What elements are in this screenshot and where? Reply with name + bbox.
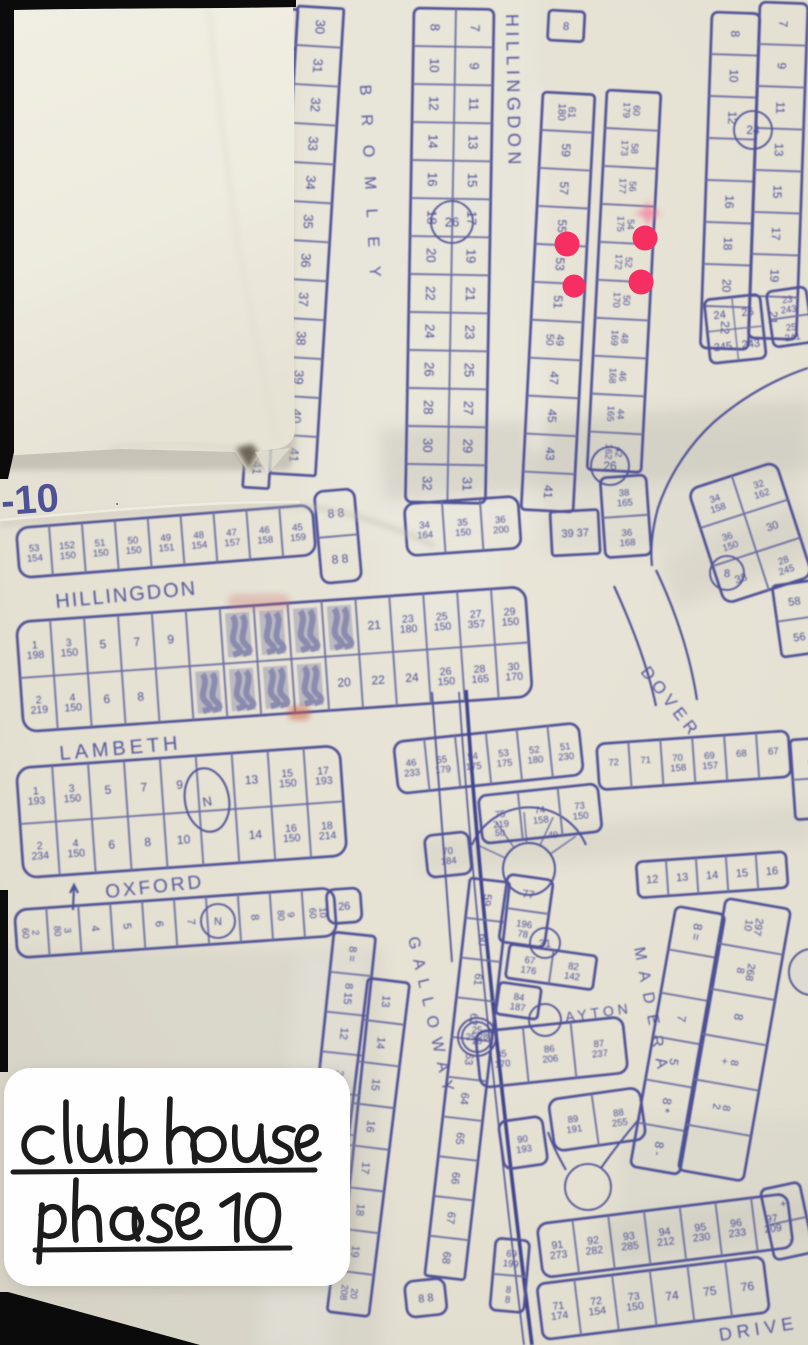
svg-text:38: 38	[293, 331, 309, 346]
svg-text:8: 8	[563, 21, 570, 33]
svg-text:74: 74	[665, 1288, 680, 1304]
svg-text:11: 11	[773, 101, 787, 114]
svg-text:14: 14	[248, 827, 263, 842]
svg-text:152150: 152150	[59, 540, 76, 562]
svg-text:67: 67	[768, 746, 779, 758]
svg-text:24: 24	[405, 670, 420, 685]
svg-text:61: 61	[471, 973, 484, 987]
svg-text:7: 7	[184, 918, 196, 925]
svg-text:71: 71	[640, 755, 651, 767]
svg-text:55: 55	[555, 219, 570, 233]
svg-text:8 *: 8 *	[658, 1097, 674, 1114]
svg-text:21: 21	[463, 287, 478, 302]
svg-text:31: 31	[310, 58, 326, 73]
svg-text:8 -: 8 -	[650, 1141, 666, 1157]
svg-text:15: 15	[368, 1078, 381, 1092]
svg-text:31: 31	[460, 477, 475, 492]
svg-text:58: 58	[788, 595, 802, 609]
svg-text:26: 26	[422, 362, 437, 377]
svg-text:30: 30	[420, 438, 435, 453]
svg-text:24: 24	[713, 309, 726, 322]
svg-text:32: 32	[308, 97, 324, 112]
svg-text:77: 77	[521, 888, 535, 902]
svg-text:13: 13	[772, 143, 786, 157]
svg-text:12: 12	[337, 1027, 350, 1040]
svg-text:60: 60	[475, 933, 488, 947]
svg-text:64: 64	[457, 1092, 470, 1106]
svg-text:56: 56	[793, 631, 807, 645]
svg-text:23: 23	[462, 325, 477, 340]
svg-text:8 8: 8 8	[418, 1292, 434, 1306]
svg-text:17: 17	[358, 1161, 371, 1175]
svg-text:33: 33	[305, 136, 321, 151]
svg-text:7: 7	[140, 780, 148, 794]
svg-text:27: 27	[461, 401, 476, 416]
svg-text:5: 5	[104, 783, 112, 797]
svg-text:22: 22	[423, 286, 438, 301]
svg-text:8: 8	[428, 24, 443, 31]
svg-text:20: 20	[719, 279, 733, 293]
svg-text:5: 5	[99, 637, 107, 651]
svg-text:24: 24	[746, 123, 760, 137]
svg-text:16: 16	[425, 172, 440, 187]
svg-text:15: 15	[736, 867, 749, 880]
svg-text:13: 13	[466, 135, 481, 150]
svg-text:8 15: 8 15	[341, 982, 355, 1005]
svg-text:10: 10	[176, 832, 191, 847]
svg-text:17: 17	[769, 227, 783, 241]
svg-text:59: 59	[480, 893, 493, 907]
svg-text:5: 5	[121, 923, 133, 930]
svg-text:31: 31	[539, 938, 551, 950]
svg-text:37: 37	[296, 292, 312, 307]
svg-text:76: 76	[740, 1279, 755, 1295]
svg-text:30: 30	[312, 19, 328, 34]
svg-text:4950: 4950	[543, 334, 566, 347]
svg-text:14: 14	[373, 1036, 386, 1050]
svg-text:1060: 1060	[306, 907, 328, 919]
svg-text:13: 13	[676, 871, 689, 884]
svg-text:26: 26	[741, 306, 754, 319]
svg-text:26: 26	[338, 900, 351, 913]
svg-text:10: 10	[427, 58, 442, 73]
svg-text:19: 19	[464, 249, 479, 264]
svg-text:9: 9	[775, 62, 789, 69]
svg-text:8 =: 8 =	[688, 922, 705, 941]
svg-text:36: 36	[298, 253, 314, 268]
svg-text:68: 68	[439, 1251, 452, 1265]
svg-text:9: 9	[467, 62, 482, 69]
svg-text:57: 57	[557, 181, 572, 195]
svg-text:65: 65	[453, 1132, 466, 1146]
svg-text:N: N	[214, 916, 222, 928]
svg-text:22: 22	[371, 673, 386, 688]
svg-text:16: 16	[765, 865, 778, 878]
svg-text:22: 22	[718, 321, 732, 335]
svg-text:8: 8	[248, 914, 260, 921]
svg-text:59: 59	[559, 143, 574, 157]
svg-text:14: 14	[426, 134, 441, 149]
svg-text:51: 51	[551, 295, 566, 309]
svg-text:21: 21	[367, 618, 382, 633]
svg-text:45: 45	[545, 409, 560, 423]
svg-text:4: 4	[89, 925, 101, 932]
svg-text:28: 28	[421, 400, 436, 415]
svg-text:8 =: 8 =	[345, 946, 359, 963]
svg-text:8: 8	[137, 689, 145, 703]
svg-text:6: 6	[152, 921, 164, 928]
svg-text:20: 20	[424, 248, 439, 263]
svg-text:35: 35	[300, 214, 316, 229]
svg-text:7: 7	[133, 635, 141, 649]
svg-text:8: 8	[728, 30, 742, 37]
svg-text:41: 41	[541, 485, 556, 499]
svg-text:19: 19	[767, 269, 781, 283]
svg-text:15: 15	[770, 185, 784, 199]
svg-text:8 8: 8 8	[331, 551, 349, 566]
svg-text:13: 13	[379, 994, 392, 1008]
svg-text:25: 25	[462, 363, 477, 378]
svg-text:34: 34	[303, 175, 319, 190]
svg-text:7: 7	[776, 20, 790, 27]
svg-text:39 37: 39 37	[561, 527, 589, 540]
svg-text:8: 8	[144, 835, 152, 849]
svg-text:32: 32	[420, 476, 435, 491]
svg-text:9: 9	[176, 778, 184, 792]
svg-text:72: 72	[608, 757, 619, 769]
svg-text:16: 16	[363, 1120, 376, 1134]
svg-text:43: 43	[543, 447, 558, 461]
svg-text:75: 75	[702, 1283, 717, 1299]
svg-text:53: 53	[553, 257, 568, 271]
svg-text:13: 13	[244, 772, 259, 787]
svg-text:6: 6	[108, 837, 116, 851]
svg-text:47: 47	[547, 371, 562, 385]
svg-text:6: 6	[103, 692, 111, 706]
svg-text:9: 9	[167, 632, 175, 646]
svg-text:11: 11	[466, 97, 481, 111]
svg-text:10: 10	[727, 69, 741, 83]
svg-text:8: 8	[724, 568, 730, 580]
svg-text:68: 68	[736, 748, 747, 760]
svg-text:66: 66	[448, 1171, 461, 1185]
svg-text:243: 243	[741, 337, 761, 351]
svg-text:20: 20	[337, 675, 352, 690]
svg-text:16: 16	[722, 195, 736, 209]
svg-text:245: 245	[713, 340, 733, 354]
svg-text:12: 12	[646, 873, 659, 886]
svg-text:HILLINGDON: HILLINGDON	[502, 14, 525, 169]
svg-text:18: 18	[721, 237, 735, 251]
svg-text:7: 7	[468, 24, 483, 31]
svg-text:14: 14	[706, 869, 719, 882]
svg-text:15: 15	[465, 173, 480, 188]
svg-text:18: 18	[353, 1203, 366, 1217]
svg-text:29: 29	[460, 439, 475, 454]
svg-text:67: 67	[444, 1211, 457, 1225]
svg-text:26: 26	[445, 215, 459, 230]
svg-text:26: 26	[603, 459, 617, 473]
svg-text:24: 24	[422, 324, 437, 339]
svg-text:12: 12	[426, 96, 441, 111]
